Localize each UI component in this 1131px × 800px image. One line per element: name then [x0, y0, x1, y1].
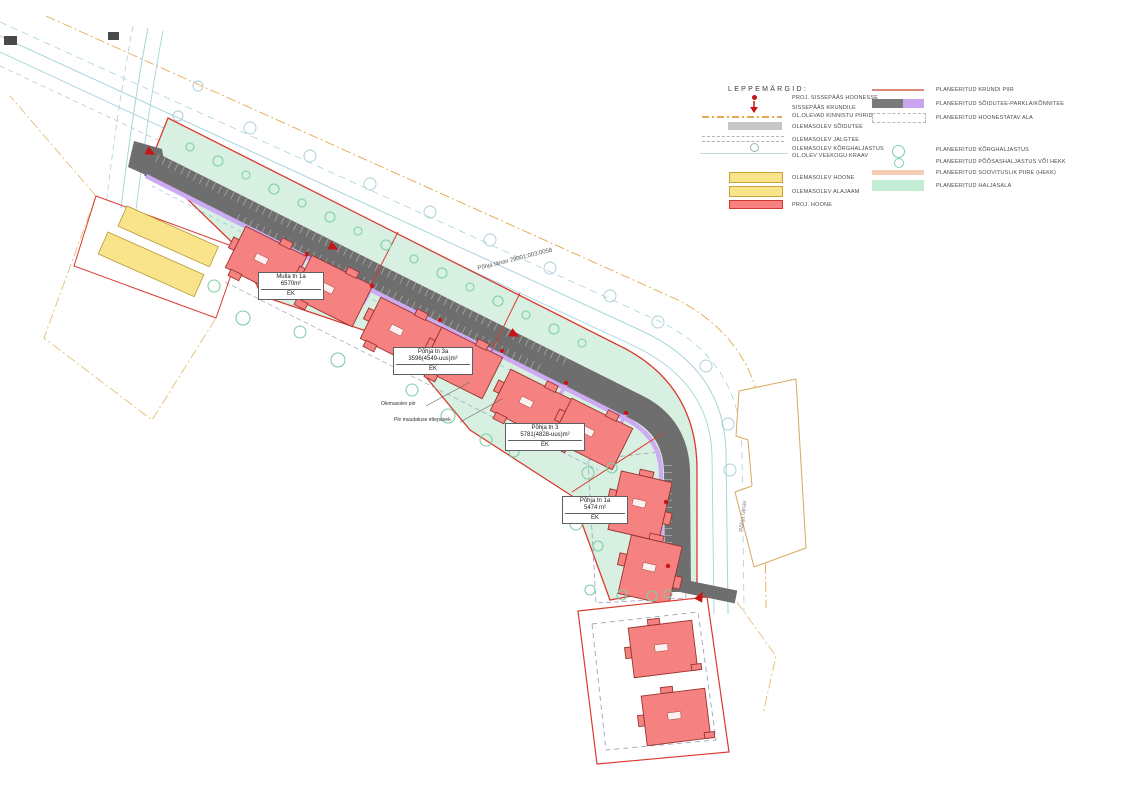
planned-tree-icon: [892, 145, 905, 158]
existing-substation-icon: [729, 186, 783, 197]
plot-area: 5781(4828-uus)m²: [508, 432, 582, 439]
legend-label: PLANEERITUD HOONESTATAV ALA: [936, 115, 1033, 121]
planned-boundary-icon: [872, 89, 924, 91]
plot-name: Põhja tn 1a: [565, 498, 625, 505]
legend-label: OL.OLEVAD KINNISTU PIIRID: [792, 113, 873, 119]
plot-label-pohja-3a: Põhja tn 3a 3596(4549-uus)m² EK: [393, 347, 473, 375]
existing-plot-right: [735, 379, 806, 567]
planned-buildable-area-icon: [872, 113, 926, 123]
legend-label: OLEMASOLEV ALAJAAM: [792, 189, 860, 195]
entrance-to-building-dot-icon: [752, 95, 757, 100]
proj-building-icon: [729, 200, 783, 209]
planned-road-walkway-icon: [872, 99, 924, 108]
plot-label-mulla-1a: Mulla tn 1a 6570m² EK: [258, 272, 324, 300]
plot-area: 6570m²: [261, 281, 321, 288]
legend-label: PLANEERITUD PÕÕSASHALJASTUS VÕI HEKK: [936, 159, 1066, 165]
annotation-boundary-change: Piir muudatuse ettepanek: [394, 417, 451, 423]
plot-name: Mulla tn 1a: [261, 274, 321, 281]
existing-tree-icon: [750, 143, 759, 152]
legend-label: PLANEERITUD SÕIDUTEE-PARKLA/KÕNNITEE: [936, 101, 1064, 107]
legend-label: PLANEERITUD KRUNDI PIIR: [936, 87, 1014, 93]
plot-label-pohja-3: Põhja tn 3 5781(4828-uus)m² EK: [505, 423, 585, 451]
legend-label: PROJ. HOONE: [792, 202, 832, 208]
annotation-existing-boundary: Olemasolev piir: [381, 401, 415, 407]
plot-area: 3596(4549-uus)m²: [396, 356, 470, 363]
planned-green-area-icon: [872, 180, 924, 191]
detail-plan-sheet: Põhja tänav 29001:003:0058 Põhja tänav M…: [0, 0, 1131, 800]
legend-label: SISSEPÄÄS KRUNDILE: [792, 105, 856, 111]
plot-zoning: EK: [508, 440, 582, 450]
legend-label: PLANEERITUD KÕRGHALJASTUS: [936, 147, 1029, 153]
street-label-pohja-tanav-cadastral: Põhja tänav 29001:003:0058: [477, 247, 554, 272]
legend-label: OLEMASOLEV KÕRGHALJASTUS: [792, 146, 884, 152]
existing-cadastral-line-icon: [702, 116, 782, 118]
legend-label: OLEMASOLEV SÕIDUTEE: [792, 124, 863, 130]
map-edge-markers: [4, 32, 119, 45]
legend-label: OL.OLEV VEEKOGU KRAAV: [792, 153, 868, 159]
legend-label: PLANEERITUD HALJASALA: [936, 183, 1011, 189]
existing-road-icon: [728, 122, 782, 130]
plot-label-pohja-1a: Põhja tn 1a 5474 m² EK: [562, 496, 628, 524]
legend-title: LEPPEMÄRGID:: [728, 86, 808, 93]
legend-label: PROJ. SISSEPÄÄS HOONESSE: [792, 95, 878, 101]
plot-zoning: EK: [565, 513, 625, 523]
legend-label: OLEMASOLEV JALGTEE: [792, 137, 859, 143]
entrance-to-plot-arrow-icon: [748, 101, 760, 113]
legend-label: OLEMASOLEV HOONE: [792, 175, 855, 181]
planned-fence-icon: [872, 170, 924, 175]
plot-name: Põhja tn 3a: [396, 349, 470, 356]
plot-zoning: EK: [261, 289, 321, 299]
plot-area: 5474 m²: [565, 505, 625, 512]
existing-building-icon: [729, 172, 783, 183]
existing-footpath-icon: [702, 136, 784, 142]
plot-zoning: EK: [396, 364, 470, 374]
bottom-plot: [578, 597, 729, 764]
legend-label: PLANEERITUD SOOVITUSLIK PIIRE (HEKK): [936, 170, 1056, 176]
existing-water-icon: [700, 153, 788, 154]
planned-shrub-icon: [894, 158, 904, 168]
plot-name: Põhja tn 3: [508, 425, 582, 432]
